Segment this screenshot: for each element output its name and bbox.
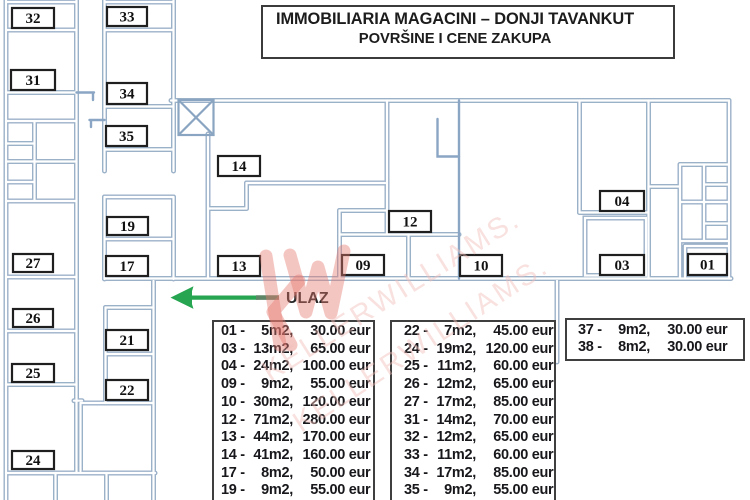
svg-text:03: 03 [615, 258, 630, 274]
svg-text:01: 01 [700, 258, 715, 274]
svg-text:09: 09 [356, 258, 371, 274]
svg-text:19: 19 [120, 219, 135, 235]
svg-text:22: 22 [120, 383, 135, 399]
svg-text:10: 10 [474, 259, 489, 275]
svg-text:17: 17 [120, 259, 136, 275]
svg-text:26: 26 [26, 311, 42, 327]
svg-text:25: 25 [26, 366, 41, 382]
svg-text:24: 24 [26, 453, 42, 469]
svg-text:27: 27 [26, 256, 42, 272]
svg-text:12: 12 [403, 215, 418, 231]
svg-text:13: 13 [232, 259, 247, 275]
svg-text:21: 21 [120, 333, 135, 349]
svg-text:35: 35 [119, 129, 134, 145]
svg-text:04: 04 [615, 194, 631, 210]
svg-text:32: 32 [26, 11, 41, 27]
svg-text:34: 34 [120, 87, 136, 103]
svg-text:31: 31 [26, 73, 41, 89]
svg-text:14: 14 [232, 159, 248, 175]
svg-text:33: 33 [120, 10, 135, 26]
